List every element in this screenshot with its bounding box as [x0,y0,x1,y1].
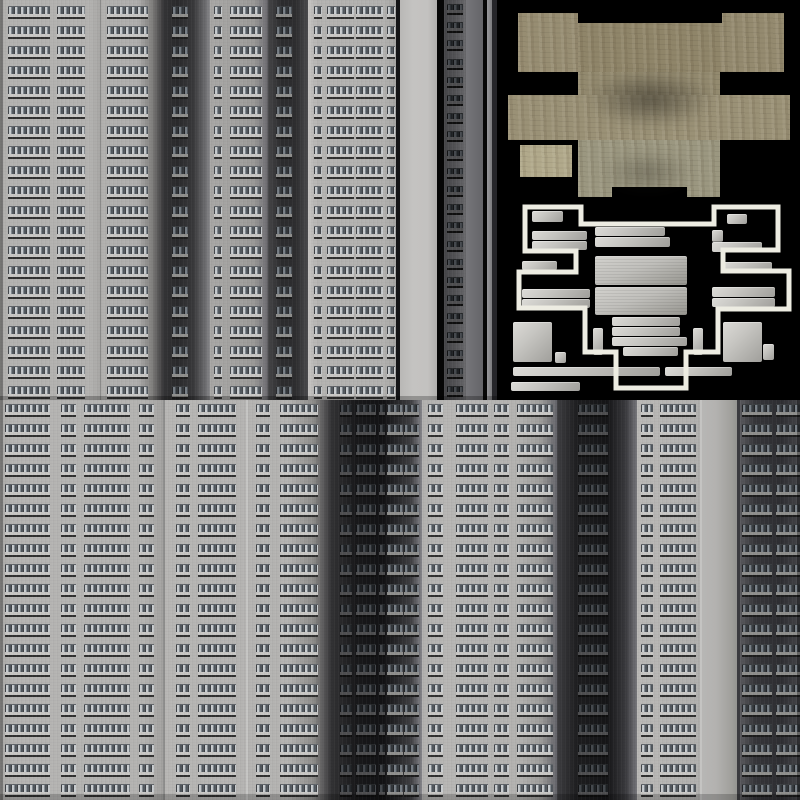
window [387,206,395,219]
window [84,624,130,637]
window [428,484,443,497]
window [404,564,419,577]
window [107,246,148,259]
window [356,266,383,279]
window [447,277,463,288]
window [84,504,130,517]
window [379,584,385,597]
window [314,66,322,79]
halves-divider-shadow [0,396,497,400]
window [494,524,509,537]
facade-t8-narrow [444,0,466,400]
window [387,266,395,279]
facade-t1 [0,0,100,400]
window [356,126,383,139]
window [172,46,188,59]
seam-t6-left [308,0,311,400]
window [387,286,395,299]
window [742,404,772,417]
window [742,484,772,497]
window [660,564,696,577]
window [8,246,50,259]
window [314,206,322,219]
window [84,524,130,537]
window [517,404,553,417]
window [356,484,376,497]
window [276,6,292,19]
window [387,6,395,19]
window [5,604,50,617]
window [61,424,76,437]
window [356,444,376,457]
window [578,504,608,517]
window [139,564,154,577]
window [327,366,354,379]
window [660,624,696,637]
window [387,246,395,259]
window [176,504,190,517]
window [84,684,130,697]
window [214,246,222,259]
window [447,4,463,15]
window [494,544,509,557]
window [387,346,395,359]
window [5,624,50,637]
window [578,404,608,417]
window [107,186,148,199]
window [517,704,553,717]
window [517,724,553,737]
window [641,644,653,657]
window [327,126,354,139]
window [256,464,270,477]
window [314,166,322,179]
window [61,704,76,717]
window [8,306,50,319]
window [387,484,403,497]
window [314,106,322,119]
window [428,724,443,737]
window [447,313,463,324]
window [214,326,222,339]
window [517,484,553,497]
window [660,404,696,417]
window [428,744,443,757]
window [356,306,383,319]
window [230,186,262,199]
window [387,86,395,99]
window [61,484,76,497]
window [256,424,270,437]
window [314,306,322,319]
window [139,704,154,717]
window [5,544,50,557]
window [456,524,488,537]
window [387,604,403,617]
window [327,86,354,99]
window [256,604,270,617]
window [8,346,50,359]
window [8,326,50,339]
window [387,146,395,159]
window [84,424,130,437]
window [356,166,383,179]
window [57,326,85,339]
facade-b4 [422,400,557,800]
window [139,444,154,457]
window [660,684,696,697]
window [176,704,190,717]
window [256,684,270,697]
window [356,744,376,757]
window [214,146,222,159]
window [198,764,236,777]
window [198,404,236,417]
window [276,326,292,339]
window [61,664,76,677]
window [379,744,385,757]
window [379,484,385,497]
window [356,86,383,99]
window [494,404,509,417]
window [742,624,772,637]
window [356,226,383,239]
window [447,131,463,142]
window [280,724,318,737]
window [5,684,50,697]
window [379,404,385,417]
window [387,544,403,557]
window [280,664,318,677]
window [107,106,148,119]
window [61,504,76,517]
window [742,564,772,577]
window [340,744,352,757]
window [214,266,222,279]
window [742,664,772,677]
window [387,106,395,119]
window [57,186,85,199]
window [5,404,50,417]
window [57,346,85,359]
window [57,106,85,119]
window [57,286,85,299]
window [356,346,383,359]
window [447,113,463,124]
window [356,564,376,577]
window [327,6,354,19]
window [8,106,50,119]
window [256,484,270,497]
window [356,66,383,79]
window [280,644,318,657]
window [379,604,385,617]
window [84,604,130,617]
divider-dark [396,0,400,400]
window [327,186,354,199]
window [356,664,376,677]
window [387,306,395,319]
window [139,684,154,697]
window [456,684,488,697]
window [404,444,419,457]
window [84,664,130,677]
window [172,86,188,99]
window [57,146,85,159]
window [139,544,154,557]
window [327,166,354,179]
window [256,524,270,537]
window [447,95,463,106]
window [404,424,419,437]
window [387,66,395,79]
window [176,764,190,777]
window [176,724,190,737]
window [230,126,262,139]
window [107,126,148,139]
window [107,266,148,279]
window [327,266,354,279]
window [494,724,509,737]
window [447,368,463,379]
window [230,366,262,379]
window [447,186,463,197]
window [280,624,318,637]
window [494,444,509,457]
window [387,764,403,777]
window [214,206,222,219]
window [198,544,236,557]
window [172,146,188,159]
window [139,664,154,677]
window [456,644,488,657]
window [172,26,188,39]
window [660,444,696,457]
window [139,744,154,757]
window [387,744,403,757]
window [494,504,509,517]
window [456,444,488,457]
window [660,584,696,597]
window [456,424,488,437]
window [139,764,154,777]
window [280,524,318,537]
window [494,604,509,617]
window [139,424,154,437]
window [84,584,130,597]
window [404,404,419,417]
window [61,444,76,457]
window [340,524,352,537]
window [742,464,772,477]
window [387,424,403,437]
window [517,504,553,517]
window [494,664,509,677]
window [340,664,352,677]
window [660,544,696,557]
window [5,564,50,577]
dark-edge-stripe [492,0,497,400]
window [428,524,443,537]
window [57,166,85,179]
window [57,366,85,379]
window [578,624,608,637]
building-texture-atlas [0,0,800,800]
window [660,504,696,517]
facade-b3-dark [330,400,422,800]
window [641,524,653,537]
window [107,46,148,59]
window [172,326,188,339]
window [742,684,772,697]
window [256,644,270,657]
window [379,464,385,477]
window [641,744,653,757]
window [340,764,352,777]
window [387,326,395,339]
window [356,704,376,717]
window [198,444,236,457]
window [61,764,76,777]
window [139,644,154,657]
window [107,86,148,99]
window [742,424,772,437]
window [404,484,419,497]
window [139,724,154,737]
window [198,664,236,677]
window [517,644,553,657]
window [356,584,376,597]
seam-b1-b2 [163,400,165,800]
window [230,266,262,279]
roof-outline-path [519,207,789,388]
window [641,484,653,497]
window [314,146,322,159]
window [660,484,696,497]
window [256,764,270,777]
window [57,126,85,139]
window [356,504,376,517]
window [230,306,262,319]
window [517,464,553,477]
window [327,306,354,319]
window [214,306,222,319]
window [280,704,318,717]
window [578,664,608,677]
window [456,544,488,557]
window [176,464,190,477]
window [447,22,463,33]
window [8,146,50,159]
window [256,444,270,457]
window [340,684,352,697]
window [61,644,76,657]
window [660,724,696,737]
window [517,584,553,597]
window [276,46,292,59]
window [256,564,270,577]
window [176,404,190,417]
window [107,166,148,179]
window [327,146,354,159]
gap-black-left [437,0,444,400]
window [61,744,76,757]
window [517,764,553,777]
window [172,226,188,239]
window [494,464,509,477]
window [517,544,553,557]
window [387,404,403,417]
window [578,464,608,477]
window [327,326,354,339]
window [340,504,352,517]
window [387,644,403,657]
window [214,346,222,359]
window [84,404,130,417]
window [5,764,50,777]
window [660,764,696,777]
window [57,206,85,219]
window [578,584,608,597]
window [8,206,50,219]
facade-t5 [268,0,308,400]
window [356,684,376,697]
window [356,724,376,737]
window [428,644,443,657]
window [314,86,322,99]
window [387,186,395,199]
window [387,126,395,139]
window [356,524,376,537]
window [578,424,608,437]
window [356,624,376,637]
window [404,624,419,637]
window [387,524,403,537]
window [356,46,383,59]
window [641,464,653,477]
seam-b2-mid [246,400,248,800]
window [660,524,696,537]
window [172,126,188,139]
facade-t2 [100,0,163,400]
window [578,684,608,697]
window [198,424,236,437]
window [641,684,653,697]
window [198,564,236,577]
window [230,166,262,179]
window [139,484,154,497]
window [107,146,148,159]
window [578,484,608,497]
window [256,664,270,677]
window [139,604,154,617]
window [276,306,292,319]
window [5,724,50,737]
window [214,26,222,39]
window [494,484,509,497]
window [447,40,463,51]
window [84,544,130,557]
window [578,604,608,617]
window [61,524,76,537]
window [176,664,190,677]
window [8,366,50,379]
window [8,26,50,39]
window [379,444,385,457]
window [356,644,376,657]
window [494,624,509,637]
window [84,704,130,717]
